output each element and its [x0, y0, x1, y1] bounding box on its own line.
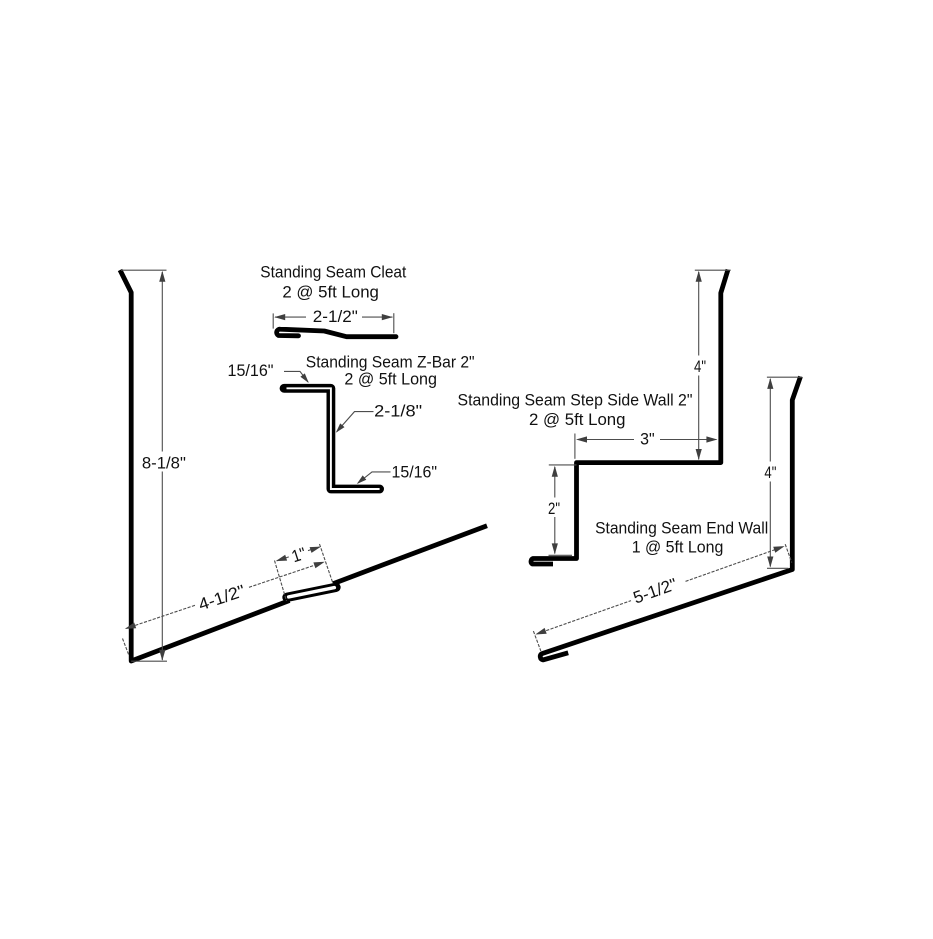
svg-text:8-1/8": 8-1/8"	[142, 453, 186, 472]
svg-text:2-1/2": 2-1/2"	[313, 307, 358, 326]
svg-text:Standing Seam Z-Bar 2": Standing Seam Z-Bar 2"	[306, 352, 475, 371]
svg-text:15/16": 15/16"	[392, 462, 438, 481]
svg-text:Standing Seam End Wall: Standing Seam End Wall	[595, 518, 768, 537]
svg-text:1 @ 5ft Long: 1 @ 5ft Long	[632, 538, 724, 557]
svg-text:4": 4"	[694, 357, 706, 376]
svg-text:Standing Seam Cleat: Standing Seam Cleat	[260, 263, 406, 282]
svg-text:15/16": 15/16"	[228, 361, 274, 380]
svg-text:2-1/8": 2-1/8"	[374, 401, 422, 420]
svg-text:3": 3"	[640, 429, 655, 448]
svg-text:Standing Seam Step Side Wall 2: Standing Seam Step Side Wall 2"	[458, 391, 693, 410]
svg-text:4": 4"	[764, 463, 776, 482]
svg-text:2 @ 5ft Long: 2 @ 5ft Long	[282, 283, 379, 302]
svg-text:2 @ 5ft Long: 2 @ 5ft Long	[344, 370, 437, 389]
svg-text:2": 2"	[548, 499, 560, 518]
svg-text:2 @ 5ft Long: 2 @ 5ft Long	[529, 410, 626, 429]
